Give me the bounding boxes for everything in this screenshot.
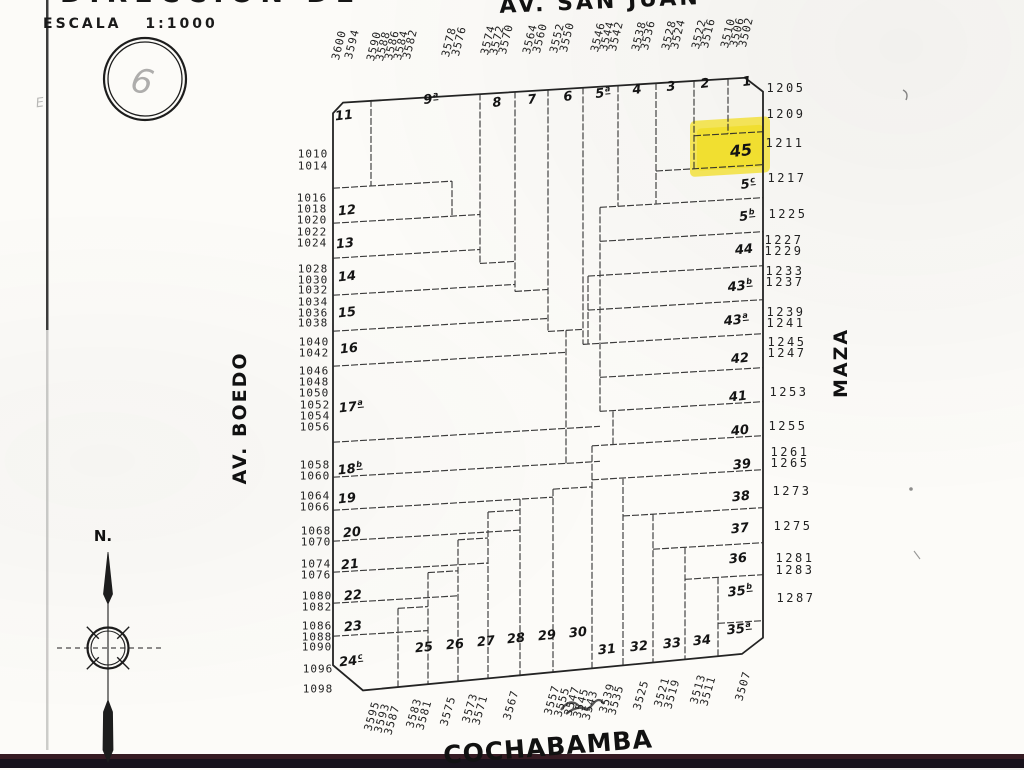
parcel-number-text: 29 — [537, 628, 557, 645]
parcel-number: 36 — [728, 552, 747, 567]
parcel-number-text: 20 — [342, 525, 362, 542]
street-number-right: 1265 — [771, 457, 810, 469]
street-number-left: 1060 — [300, 471, 331, 482]
parcel-number-suffix: a — [604, 84, 610, 95]
street-number-bottom-text: 3567 — [501, 689, 522, 722]
parcel-number-text: 35 — [727, 584, 747, 601]
street-number-left: 1020 — [297, 215, 328, 226]
street-number-left-text: 1014 — [298, 160, 329, 173]
parcel-number-text: 11 — [334, 108, 354, 125]
parcel-number-text: 6 — [563, 89, 574, 105]
street-number-right-text: 1237 — [766, 275, 805, 289]
street-number-bottom-text: 3575 — [438, 695, 459, 728]
stamp-digit: 6 — [127, 60, 158, 104]
parcel-number-text: 38 — [731, 489, 751, 506]
parcel-number-text: 18 — [337, 462, 357, 479]
parcel-number: 22 — [343, 589, 362, 604]
parcel-number: 45 — [729, 142, 753, 160]
parcel-number: 44 — [734, 243, 753, 258]
street-number-right-text: 1247 — [768, 346, 807, 360]
parcel-number: 26 — [445, 638, 464, 653]
street-number-right-text: 1209 — [767, 107, 806, 121]
street-number-left: 1032 — [298, 285, 329, 296]
parcel-number-suffix: b — [746, 582, 753, 593]
street-number-left: 1038 — [298, 318, 329, 329]
street-number-right: 1205 — [767, 82, 806, 94]
street-number-right: 1255 — [769, 420, 808, 432]
street-number-right-text: 1255 — [769, 419, 808, 433]
parcel-number-text: 3 — [666, 79, 677, 95]
street-number-right-text: 1211 — [766, 136, 805, 150]
street-number-left: 1010 — [298, 149, 329, 160]
parcel-number-text: 42 — [730, 351, 750, 368]
parcel-number: 6 — [563, 90, 573, 104]
street-number-right: 1209 — [767, 108, 806, 120]
parcel-number-text: 44 — [734, 242, 754, 259]
street-number-right: 1253 — [770, 386, 809, 398]
parcel-number-text: 23 — [343, 619, 363, 636]
parcel-number: 24c — [338, 653, 363, 670]
parcel-number: 5a — [595, 85, 612, 101]
street-number-right: 1229 — [765, 245, 804, 257]
parcel-number: 33 — [662, 637, 681, 652]
parcel-number-suffix: a — [432, 90, 438, 101]
parcel-number-text: 19 — [337, 491, 357, 508]
parcel-number: 38 — [731, 490, 750, 505]
parcel-number: 32 — [629, 640, 648, 655]
street-number-right: 1211 — [766, 137, 805, 149]
parcel-number: 43b — [727, 278, 753, 295]
parcel-number-text: 43 — [727, 279, 747, 296]
parcel-number: 41 — [728, 390, 747, 405]
parcel-number-text: 26 — [445, 637, 465, 654]
parcel-number: 2 — [700, 77, 710, 91]
street-number-left-text: 1056 — [300, 421, 331, 434]
street-number-left: 1082 — [302, 602, 333, 613]
parcel-number: 27 — [476, 635, 495, 650]
parcel-number: 12 — [337, 204, 356, 219]
street-number-left: 1050 — [299, 388, 330, 399]
parcel-number: 15 — [337, 306, 356, 321]
parcel-number: 13 — [335, 237, 354, 252]
street-number-left: 1098 — [303, 684, 334, 695]
parcel-number-suffix: c — [750, 175, 756, 185]
parcel-number-text: 34 — [692, 633, 712, 650]
parcel-number-text: 17 — [338, 400, 358, 417]
parcel-number-text: 36 — [728, 551, 748, 568]
street-number-bottom-text: 3525 — [631, 679, 652, 712]
parcel-number-text: 32 — [629, 639, 649, 656]
parcel-number: 29 — [537, 629, 556, 644]
parcel-number-text: 43 — [723, 313, 743, 330]
street-number-bottom: 3575 — [439, 695, 458, 727]
parcel-number-suffix: a — [742, 311, 748, 322]
street-number-right-text: 1287 — [777, 591, 816, 605]
parcel-number: 31 — [597, 643, 616, 658]
parcel-number: 20 — [342, 526, 361, 541]
parcel-number-suffix: b — [746, 277, 753, 288]
street-number-left-text: 1082 — [302, 601, 333, 614]
sheet-title-fragment: DIRECCION DE — [60, 0, 361, 9]
parcel-number-text: 8 — [492, 95, 503, 111]
label-layer: DIRECCION DE ESCALA 1:1000 6 E AV. SAN J… — [0, 0, 1024, 768]
parcel-number-text: 33 — [662, 636, 682, 653]
street-number-right: 1241 — [767, 317, 806, 329]
scanned-cadastral-map: { "title_fragment": "DIRECCION DE", "sca… — [0, 0, 1024, 768]
street-label-cochabamba: COCHABAMBA — [442, 724, 654, 769]
street-number-left: 1066 — [300, 502, 331, 513]
parcel-number: 18b — [337, 461, 363, 478]
parcel-number-text: 45 — [729, 140, 753, 161]
parcel-number: 35a — [726, 621, 752, 638]
compass-north-label: N. — [94, 527, 112, 545]
parcel-number-text: 9 — [423, 92, 434, 108]
street-number-right-text: 1253 — [770, 385, 809, 399]
street-number-left: 1056 — [300, 422, 331, 433]
street-number-left-text: 1038 — [298, 317, 329, 330]
street-number-left: 1090 — [302, 642, 333, 653]
street-number-right-text: 1275 — [774, 519, 813, 533]
parcel-number: 7 — [527, 93, 537, 107]
street-number-right-text: 1229 — [765, 244, 804, 258]
parcel-number-text: 30 — [568, 625, 588, 642]
parcel-number-text: 15 — [337, 305, 357, 322]
street-number-left-text: 1060 — [300, 470, 331, 483]
scale-label: ESCALA 1:1000 — [43, 16, 218, 32]
parcel-number: 34 — [692, 634, 711, 649]
street-number-bottom: 3567 — [502, 689, 521, 721]
street-number-right: 1217 — [768, 172, 807, 184]
street-number-bottom-text: 3507 — [733, 670, 754, 703]
parcel-number: 43a — [723, 312, 749, 329]
parcel-number-suffix: b — [748, 207, 755, 218]
street-number-right: 1275 — [774, 520, 813, 532]
street-number-left: 1070 — [301, 537, 332, 548]
street-number-right-text: 1273 — [773, 484, 812, 498]
street-number-left-text: 1070 — [301, 536, 332, 549]
parcel-number-text: 40 — [730, 423, 750, 440]
street-number-right-text: 1205 — [767, 81, 806, 95]
parcel-number: 8 — [492, 96, 502, 110]
street-number-left: 1076 — [301, 570, 332, 581]
parcel-number-text: 28 — [506, 631, 526, 648]
street-number-left-text: 1076 — [301, 569, 332, 582]
parcel-number-text: 7 — [527, 92, 538, 108]
parcel-number-text: 22 — [343, 588, 363, 605]
street-number-right: 1237 — [766, 276, 805, 288]
street-label-san-juan: AV. SAN JUAN — [499, 0, 701, 19]
street-number-bottom: 3507 — [734, 670, 753, 702]
parcel-number-text: 39 — [732, 457, 752, 474]
parcel-number-text: 1 — [742, 74, 753, 90]
street-number-bottom: 3525 — [632, 679, 651, 711]
street-number-left: 1042 — [299, 348, 330, 359]
street-number-left-text: 1042 — [299, 347, 330, 360]
parcel-number-suffix: a — [357, 398, 363, 409]
parcel-number-text: 31 — [597, 642, 617, 659]
street-number-right: 1283 — [776, 564, 815, 576]
parcel-number: 40 — [730, 424, 749, 439]
parcel-number-text: 21 — [340, 557, 360, 574]
margin-scribble: E — [35, 95, 49, 112]
street-number-left-text: 1090 — [302, 641, 333, 654]
parcel-number-text: 2 — [700, 76, 711, 92]
street-label-maza: MAZA — [830, 328, 852, 398]
street-number-left-text: 1024 — [297, 237, 328, 250]
parcel-number: 30 — [568, 626, 587, 641]
parcel-number: 1 — [742, 75, 752, 89]
street-number-right-text: 1225 — [769, 207, 808, 221]
parcel-number-text: 4 — [632, 82, 643, 98]
parcel-number: 21 — [340, 558, 359, 573]
street-number-left: 1024 — [297, 238, 328, 249]
street-number-left: 1096 — [303, 664, 334, 675]
parcel-number: 5c — [740, 176, 756, 192]
parcel-number-text: 37 — [730, 521, 750, 538]
street-number-left-text: 1096 — [303, 663, 334, 676]
parcel-number: 5b — [738, 208, 755, 224]
street-number-right-text: 1241 — [767, 316, 806, 330]
parcel-number: 37 — [730, 522, 749, 537]
parcel-number-text: 5 — [595, 86, 606, 102]
parcel-number-text: 41 — [728, 389, 748, 406]
street-number-right: 1225 — [769, 208, 808, 220]
street-number-right-text: 1265 — [771, 456, 810, 470]
parcel-number: 19 — [337, 492, 356, 507]
parcel-number: 16 — [339, 342, 358, 357]
street-number-left-text: 1098 — [303, 683, 334, 696]
street-number-right: 1273 — [773, 485, 812, 497]
street-number-right-text: 1283 — [776, 563, 815, 577]
parcel-number-text: 5 — [740, 177, 751, 193]
street-number-right: 1247 — [768, 347, 807, 359]
street-number-left: 1014 — [298, 161, 329, 172]
street-label-boedo: AV. BOEDO — [229, 351, 251, 484]
parcel-number: 42 — [730, 352, 749, 367]
parcel-number-text: 27 — [476, 634, 496, 651]
parcel-number: 14 — [337, 270, 356, 285]
parcel-number: 4 — [632, 83, 642, 97]
parcel-number: 11 — [334, 109, 353, 124]
street-number-right: 1287 — [777, 592, 816, 604]
parcel-number: 28 — [506, 632, 525, 647]
parcel-number-text: 16 — [339, 341, 359, 358]
parcel-number-text: 14 — [337, 269, 357, 286]
parcel-number: 9a — [423, 91, 440, 107]
parcel-number-text: 5 — [738, 209, 749, 225]
parcel-number: 39 — [732, 458, 751, 473]
street-number-right-text: 1217 — [768, 171, 807, 185]
street-number-left-text: 1066 — [300, 501, 331, 514]
parcel-number: 17a — [338, 399, 364, 416]
parcel-number-text: 24 — [338, 654, 358, 671]
parcel-number: 35b — [727, 583, 753, 600]
parcel-number: 3 — [666, 80, 676, 94]
parcel-number-suffix: b — [356, 460, 363, 471]
parcel-number-text: 12 — [337, 203, 357, 220]
parcel-number-text: 25 — [414, 640, 434, 657]
parcel-number-text: 13 — [335, 236, 355, 253]
parcel-number: 23 — [343, 620, 362, 635]
parcel-number-suffix: c — [357, 652, 363, 662]
parcel-number: 25 — [414, 641, 433, 656]
parcel-number-suffix: a — [745, 620, 751, 631]
parcel-number-text: 35 — [726, 622, 746, 639]
